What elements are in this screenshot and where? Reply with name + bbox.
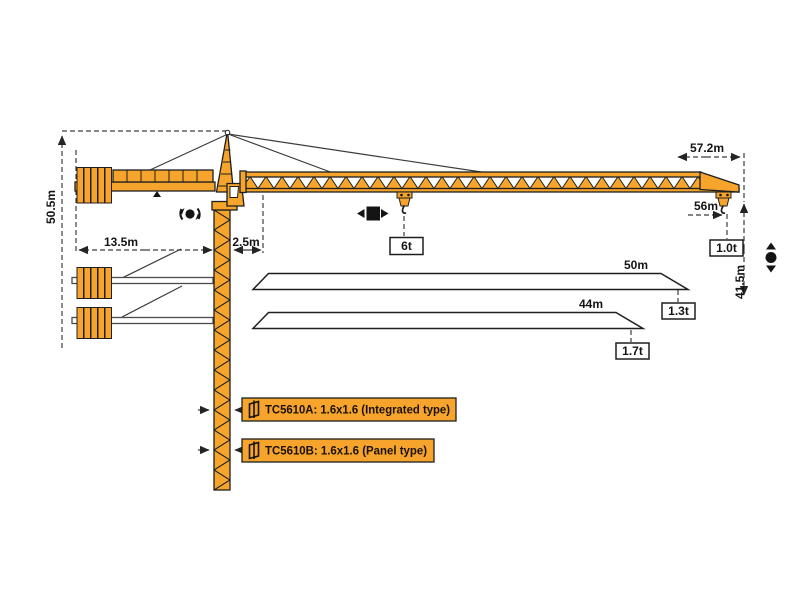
mast-section-callout-b: TC5610B: 1.6x1.6 (Panel type) bbox=[198, 439, 434, 462]
load-badge-tip: 1.0t bbox=[710, 240, 743, 256]
load-badge-mid: 6t bbox=[390, 238, 423, 255]
mast-label-a: TC5610A: 1.6x1.6 (Integrated type) bbox=[265, 403, 450, 417]
min-radius-label: 2.5m bbox=[232, 235, 259, 249]
ballast-leader-2 bbox=[122, 286, 182, 317]
ballast-row-2 bbox=[72, 308, 213, 339]
counterjib-radius-label: 13.5m bbox=[104, 235, 138, 249]
jib-variant-44m bbox=[253, 313, 643, 329]
slewing-rotation-icon bbox=[180, 208, 201, 220]
load-badge-44m: 1.7t bbox=[616, 343, 649, 359]
crane-specification-diagram: 6t 1.0t 1.3t 1.7t 50.5m 13.5m 2.5m 57.2m… bbox=[0, 0, 800, 600]
jib-tip-section bbox=[700, 172, 739, 192]
diagram-canvas: 6t 1.0t 1.3t 1.7t 50.5m 13.5m 2.5m 57.2m… bbox=[0, 0, 800, 600]
main-jib bbox=[240, 171, 739, 193]
tip-load-value: 1.0t bbox=[716, 241, 737, 255]
attachment-marker-icon bbox=[153, 191, 161, 197]
jib-top-chord bbox=[242, 172, 701, 177]
trolley-travel-icon bbox=[357, 207, 389, 221]
mid-trolley-hook bbox=[397, 192, 412, 213]
apex-pulley bbox=[225, 130, 230, 135]
tower-head bbox=[217, 130, 234, 192]
jib-root-post bbox=[240, 171, 246, 193]
tip-hook-radius-label: 56m bbox=[694, 199, 718, 213]
jib-tie-bar-2 bbox=[228, 134, 488, 173]
mid-load-value: 6t bbox=[401, 239, 412, 253]
jib-truss bbox=[242, 177, 700, 189]
jib44-load-value: 1.7t bbox=[622, 344, 643, 358]
tip-hook bbox=[722, 206, 725, 214]
jib-tie-bar-1 bbox=[228, 134, 333, 173]
ballast-weights-2 bbox=[77, 308, 112, 339]
jib50-length-label: 50m bbox=[624, 258, 648, 272]
tower-mast bbox=[214, 210, 230, 490]
max-radius-label: 57.2m bbox=[690, 141, 724, 155]
counterjib-platform bbox=[113, 170, 213, 182]
counterjib-tie-bar bbox=[150, 134, 228, 170]
hook-hoist-icon bbox=[766, 243, 777, 273]
ballast-leader-1 bbox=[122, 249, 181, 278]
counter-jib bbox=[75, 168, 215, 204]
ballast-weights-1 bbox=[77, 268, 112, 299]
jib50-load-value: 1.3t bbox=[668, 304, 689, 318]
ballast-row-1 bbox=[72, 268, 213, 299]
jib-variant-50m bbox=[253, 274, 688, 290]
load-badge-50m: 1.3t bbox=[662, 303, 695, 319]
tip-trolley-hook bbox=[716, 192, 731, 213]
mast-section-callout-a: TC5610A: 1.6x1.6 (Integrated type) bbox=[198, 398, 456, 421]
jib-bottom-chord bbox=[242, 189, 739, 193]
mast-label-b: TC5610B: 1.6x1.6 (Panel type) bbox=[265, 444, 427, 458]
mid-hook bbox=[403, 206, 406, 214]
total-height-label: 50.5m bbox=[44, 190, 58, 224]
cab-window bbox=[230, 187, 239, 198]
hook-height-label: 41.5m bbox=[733, 265, 747, 299]
jib44-length-label: 44m bbox=[579, 297, 603, 311]
counterweight-slabs bbox=[77, 168, 112, 204]
